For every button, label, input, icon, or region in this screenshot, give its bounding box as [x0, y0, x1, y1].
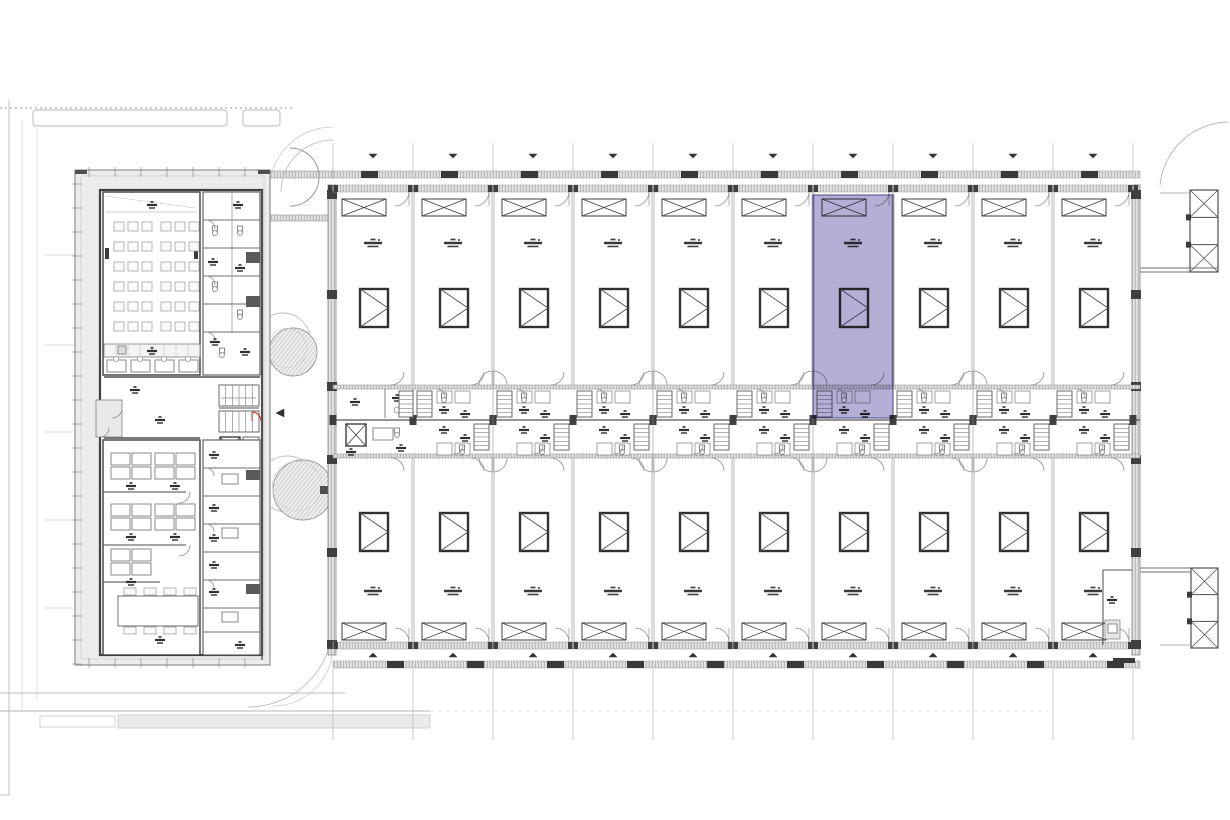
unit-north-2[interactable]: [413, 192, 493, 418]
unit-south-1[interactable]: [333, 458, 413, 642]
unit-north-10[interactable]: [1053, 192, 1133, 418]
left-offices: [103, 440, 200, 655]
unit-south-5[interactable]: [653, 458, 733, 642]
floor-plan-viewer: [0, 0, 1230, 820]
unit-north-5[interactable]: [653, 192, 733, 418]
unit-hit-regions: [333, 192, 1133, 642]
unit-south-8[interactable]: [893, 458, 973, 642]
left-building: [72, 167, 284, 668]
unit-south-10[interactable]: [1053, 458, 1133, 642]
unit-south-9[interactable]: [973, 458, 1053, 642]
unit-south-4[interactable]: [573, 458, 653, 642]
stair-tower-south: [1140, 568, 1218, 648]
unit-south-6[interactable]: [733, 458, 813, 642]
unit-south-3[interactable]: [493, 458, 573, 642]
unit-north-3[interactable]: [493, 192, 573, 418]
stair: [219, 385, 259, 432]
stair-tower-north: [1140, 190, 1218, 272]
left-side-offices: [203, 440, 260, 655]
unit-north-1[interactable]: [333, 192, 413, 418]
unit-north-9[interactable]: [973, 192, 1053, 418]
unit-south-7[interactable]: [813, 458, 893, 642]
unit-south-2[interactable]: [413, 458, 493, 642]
service-core: [203, 192, 260, 375]
unit-north-7[interactable]: [813, 192, 893, 418]
unit-north-8[interactable]: [893, 192, 973, 418]
unit-north-4[interactable]: [573, 192, 653, 418]
unit-north-6[interactable]: [733, 192, 813, 418]
floor-plan-drawing: [0, 0, 1230, 820]
